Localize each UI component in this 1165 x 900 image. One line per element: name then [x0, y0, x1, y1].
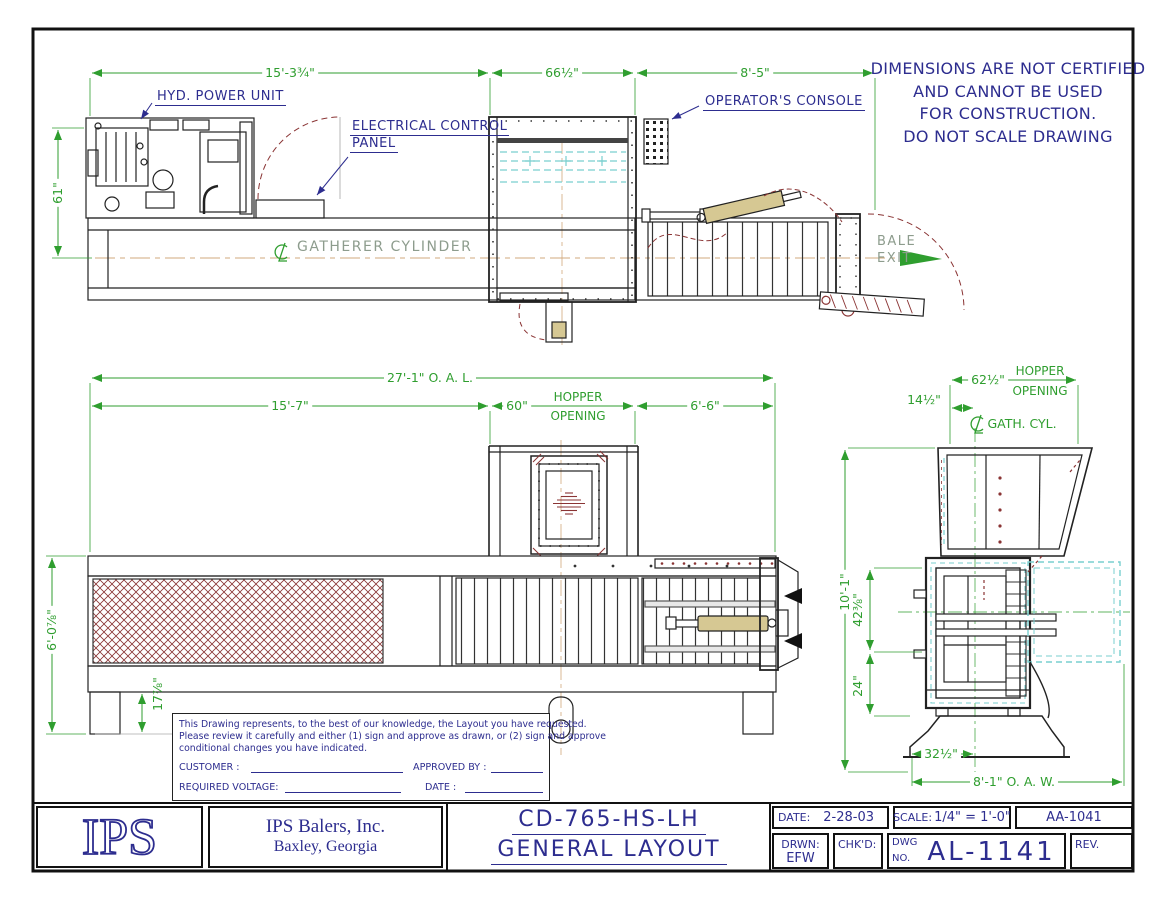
plan-dim-left: 15'-3¾" — [262, 67, 318, 80]
date-blank-line[interactable] — [465, 791, 543, 793]
revision-box: REV. — [1070, 833, 1133, 869]
notes-paragraph-line2: Please review it carefully and either (1… — [179, 731, 606, 742]
drawn-by-value: EFW — [774, 851, 827, 866]
company-box: IPS Balers, Inc. Baxley, Georgia — [208, 806, 443, 868]
date-label: DATE : — [425, 782, 456, 793]
date-value: 2-28-03 — [810, 810, 887, 825]
approved-by-label: APPROVED BY : — [413, 762, 486, 773]
operators-console-drawing — [644, 119, 668, 164]
pedestal-drawing — [903, 662, 1070, 757]
end-dim-hopper: 62½" — [968, 374, 1008, 387]
frame-end-drawing — [914, 558, 1056, 708]
end-dim-mid: 42⅜" — [852, 590, 865, 630]
voltage-blank-line[interactable] — [285, 791, 401, 793]
required-voltage-label: REQUIRED VOLTAGE: — [179, 782, 279, 793]
hopper-end-drawing — [938, 448, 1092, 556]
end-hopper-word2: OPENING — [1012, 385, 1067, 397]
hyd-power-unit-drawing — [86, 118, 254, 218]
logo-box: IPS — [36, 806, 203, 868]
elevation-view — [88, 440, 802, 755]
drawing-sheet: DIMENSIONS ARE NOT CERTIFIED AND CANNOT … — [0, 0, 1165, 900]
disclaimer-line: DO NOT SCALE DRAWING — [862, 126, 1154, 149]
end-dim-oaw: 8'-1" O. A. W. — [970, 776, 1058, 789]
chamber-hidden-drawing — [1028, 556, 1120, 662]
disclaimer-line: DIMENSIONS ARE NOT CERTIFIED — [862, 58, 1154, 81]
elev-dim-height: 6'-0⅞" — [46, 606, 59, 654]
dimension-lines — [46, 73, 1124, 786]
hatch-diamond — [553, 493, 585, 514]
electrical-panel-drawing — [256, 117, 340, 218]
end-view — [898, 428, 1130, 772]
dwg-number: AL-1141 — [919, 837, 1064, 867]
company-location: Baxley, Georgia — [210, 838, 441, 856]
end-dim-pedestal: 32½" — [921, 748, 961, 761]
bale-exit-label-line1: BALE — [877, 235, 916, 248]
elev-dim-oal: 27'-1" O. A. L. — [384, 372, 476, 385]
plan-dim-mid: 66½" — [542, 67, 582, 80]
end-dim-base: 24" — [852, 672, 865, 700]
end-dim-offset: 14½" — [904, 394, 944, 407]
bale-exit-label-line2: EXIT — [877, 252, 912, 265]
checked-by-label: CHK'D: — [838, 838, 881, 851]
ips-logo: IPS — [82, 808, 157, 867]
sheet-code-box: AA-1041 — [1015, 806, 1133, 829]
dwg-label-line1: DWG — [892, 837, 917, 848]
drawing-title: GENERAL LAYOUT — [491, 837, 726, 865]
drawing-title-area: CD-765-HS-LH GENERAL LAYOUT — [450, 807, 768, 865]
sheet-code: AA-1041 — [1046, 810, 1102, 825]
elev-dim-left: 15'-7" — [268, 400, 312, 413]
drawn-by-label: DRWN: — [774, 838, 827, 851]
dwg-label-line2: NO. — [892, 853, 910, 864]
scale-box: SCALE: 1/4" = 1'-0" — [893, 806, 1011, 829]
approval-notes-box: This Drawing represents, to the best of … — [172, 713, 550, 801]
hyd-power-unit-label: HYD. POWER UNIT — [155, 90, 286, 106]
plan-dim-right: 8'-5" — [737, 67, 773, 80]
operators-console-label: OPERATOR'S CONSOLE — [703, 95, 865, 111]
notes-paragraph-line1: This Drawing represents, to the best of … — [179, 719, 587, 730]
date-field-label: DATE: — [774, 811, 810, 824]
disclaimer-note: DIMENSIONS ARE NOT CERTIFIED AND CANNOT … — [862, 58, 1154, 149]
centerline-symbol-icon — [275, 243, 983, 433]
drawn-by-box: DRWN: EFW — [772, 833, 829, 869]
dwg-number-box: DWG NO. AL-1141 — [887, 833, 1066, 869]
customer-label: CUSTOMER : — [179, 762, 240, 773]
plan-view — [86, 117, 964, 345]
elev-hopper-word2: OPENING — [550, 410, 605, 422]
plan-dim-height: 61" — [52, 179, 65, 207]
hopper-elevation-drawing — [489, 446, 638, 556]
model-number: CD-765-HS-LH — [512, 807, 705, 835]
revision-label: REV. — [1075, 838, 1131, 851]
notes-paragraph-line3: conditional changes you have indicated. — [179, 743, 367, 754]
elev-dim-leg: 17⅞" — [152, 674, 165, 714]
elev-hopper-word1: HOPPER — [554, 391, 603, 403]
approved-by-blank-line[interactable] — [491, 771, 543, 773]
disclaimer-line: FOR CONSTRUCTION. — [862, 103, 1154, 126]
elev-dim-right: 6'-6" — [687, 400, 723, 413]
date-box: DATE: 2-28-03 — [772, 806, 889, 829]
checked-by-box: CHK'D: — [833, 833, 883, 869]
customer-blank-line[interactable] — [251, 771, 403, 773]
elev-dim-hopper-val: 60" — [503, 400, 531, 413]
electrical-control-label-line1: ELECTRICAL CONTROL — [350, 120, 509, 136]
company-name: IPS Balers, Inc. — [210, 816, 441, 838]
electrical-control-label-line2: PANEL — [350, 137, 398, 153]
scale-value: 1/4" = 1'-0" — [934, 810, 1011, 825]
end-hopper-word1: HOPPER — [1016, 365, 1065, 377]
scale-field-label: SCALE: — [893, 811, 932, 824]
disclaimer-line: AND CANNOT BE USED — [862, 81, 1154, 104]
gatherer-cylinder-label: GATHERER CYLINDER — [297, 240, 472, 254]
end-gath-cyl-label: GATH. CYL. — [987, 418, 1056, 431]
